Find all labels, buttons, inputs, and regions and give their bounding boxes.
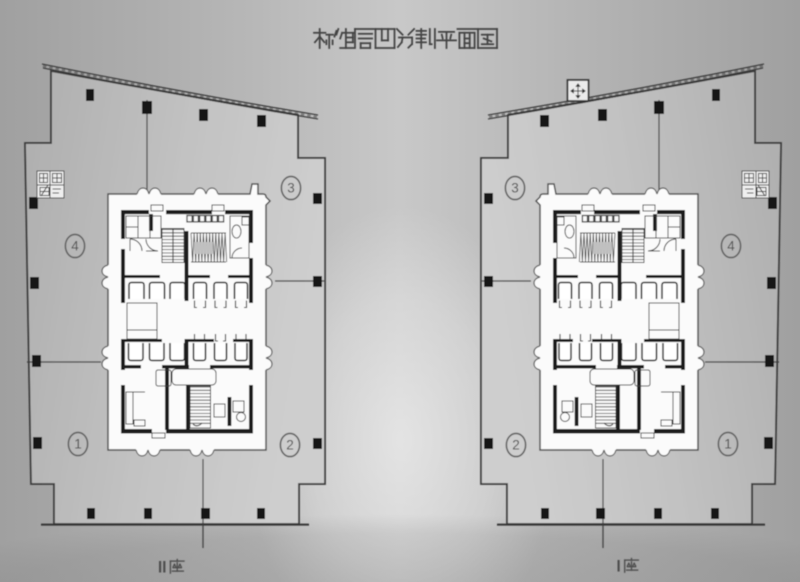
svg-text:3: 3 xyxy=(287,181,295,196)
svg-text:4: 4 xyxy=(727,239,735,254)
svg-text:2: 2 xyxy=(512,438,520,453)
svg-text:3: 3 xyxy=(511,181,519,196)
svg-text:2: 2 xyxy=(286,438,294,453)
svg-text:1: 1 xyxy=(724,437,732,452)
svg-text:1: 1 xyxy=(74,437,82,452)
svg-text:4: 4 xyxy=(71,239,79,254)
